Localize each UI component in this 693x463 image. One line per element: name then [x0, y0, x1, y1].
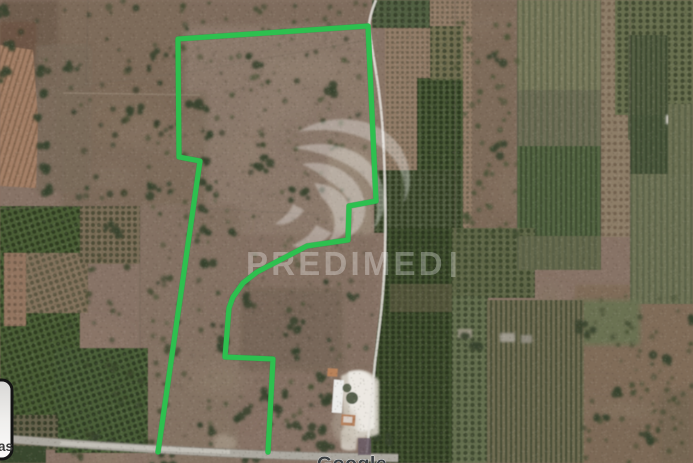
svg-text:Google: Google: [317, 453, 387, 463]
svg-text:as: as: [0, 439, 13, 454]
